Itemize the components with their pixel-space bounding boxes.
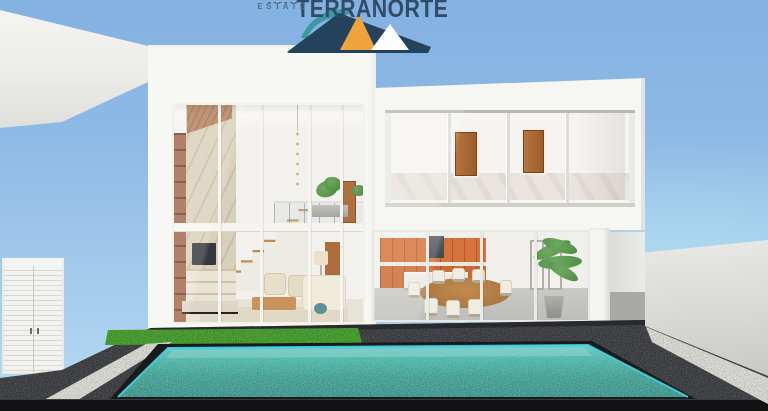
- glazing-mullion: [340, 105, 343, 322]
- dining-chair: [452, 268, 465, 282]
- bedroom-sliding-glass: [385, 110, 635, 207]
- landing-plant-leaf: [352, 185, 365, 196]
- upper-volume-side-edge: [641, 78, 645, 230]
- floor-lamp-shade: [314, 251, 328, 265]
- glass-top-shadow: [174, 105, 363, 115]
- villa-upper-volume: [375, 78, 645, 230]
- bedroom-corner-shadow: [575, 110, 625, 200]
- brand-name: TERRANORTE: [296, 0, 448, 22]
- living-room-glass-facade: [172, 103, 365, 324]
- first-floor-slab-band: [174, 223, 363, 231]
- glazing-mullion: [308, 105, 311, 322]
- dining-chair: [432, 270, 445, 284]
- glazing-mullion: [260, 105, 263, 322]
- sliding-door-track: [385, 110, 635, 113]
- pendant-chandelier: [294, 129, 301, 189]
- bedroom-wood-door-left: [455, 132, 477, 176]
- tagline-rule-right: [268, 2, 298, 3]
- terranorte-logo: TERRANORTE TERRANORTE REAL ESTATE: [283, 2, 483, 98]
- sliding-glass-mullion: [506, 110, 510, 207]
- lawn-texture: [105, 328, 362, 345]
- sliding-glass-mullion: [565, 110, 569, 207]
- glazing-mullion: [218, 105, 221, 322]
- armchair: [264, 273, 286, 295]
- ground-plane: [0, 300, 768, 411]
- bedroom-wood-door-right: [523, 130, 544, 173]
- glass-frame-post: [385, 110, 391, 207]
- glass-sill: [385, 203, 635, 207]
- dining-chair: [472, 269, 485, 283]
- left-boundary-wall: [0, 0, 148, 130]
- dining-chair: [500, 280, 512, 296]
- wall-tv: [192, 243, 216, 265]
- render-canvas: TERRANORTE TERRANORTE REAL ESTATE: [0, 0, 768, 411]
- glass-frame-post: [629, 110, 635, 207]
- front-black-band: [0, 400, 768, 411]
- sliding-glass-mullion: [447, 110, 451, 207]
- dining-chair: [408, 282, 420, 298]
